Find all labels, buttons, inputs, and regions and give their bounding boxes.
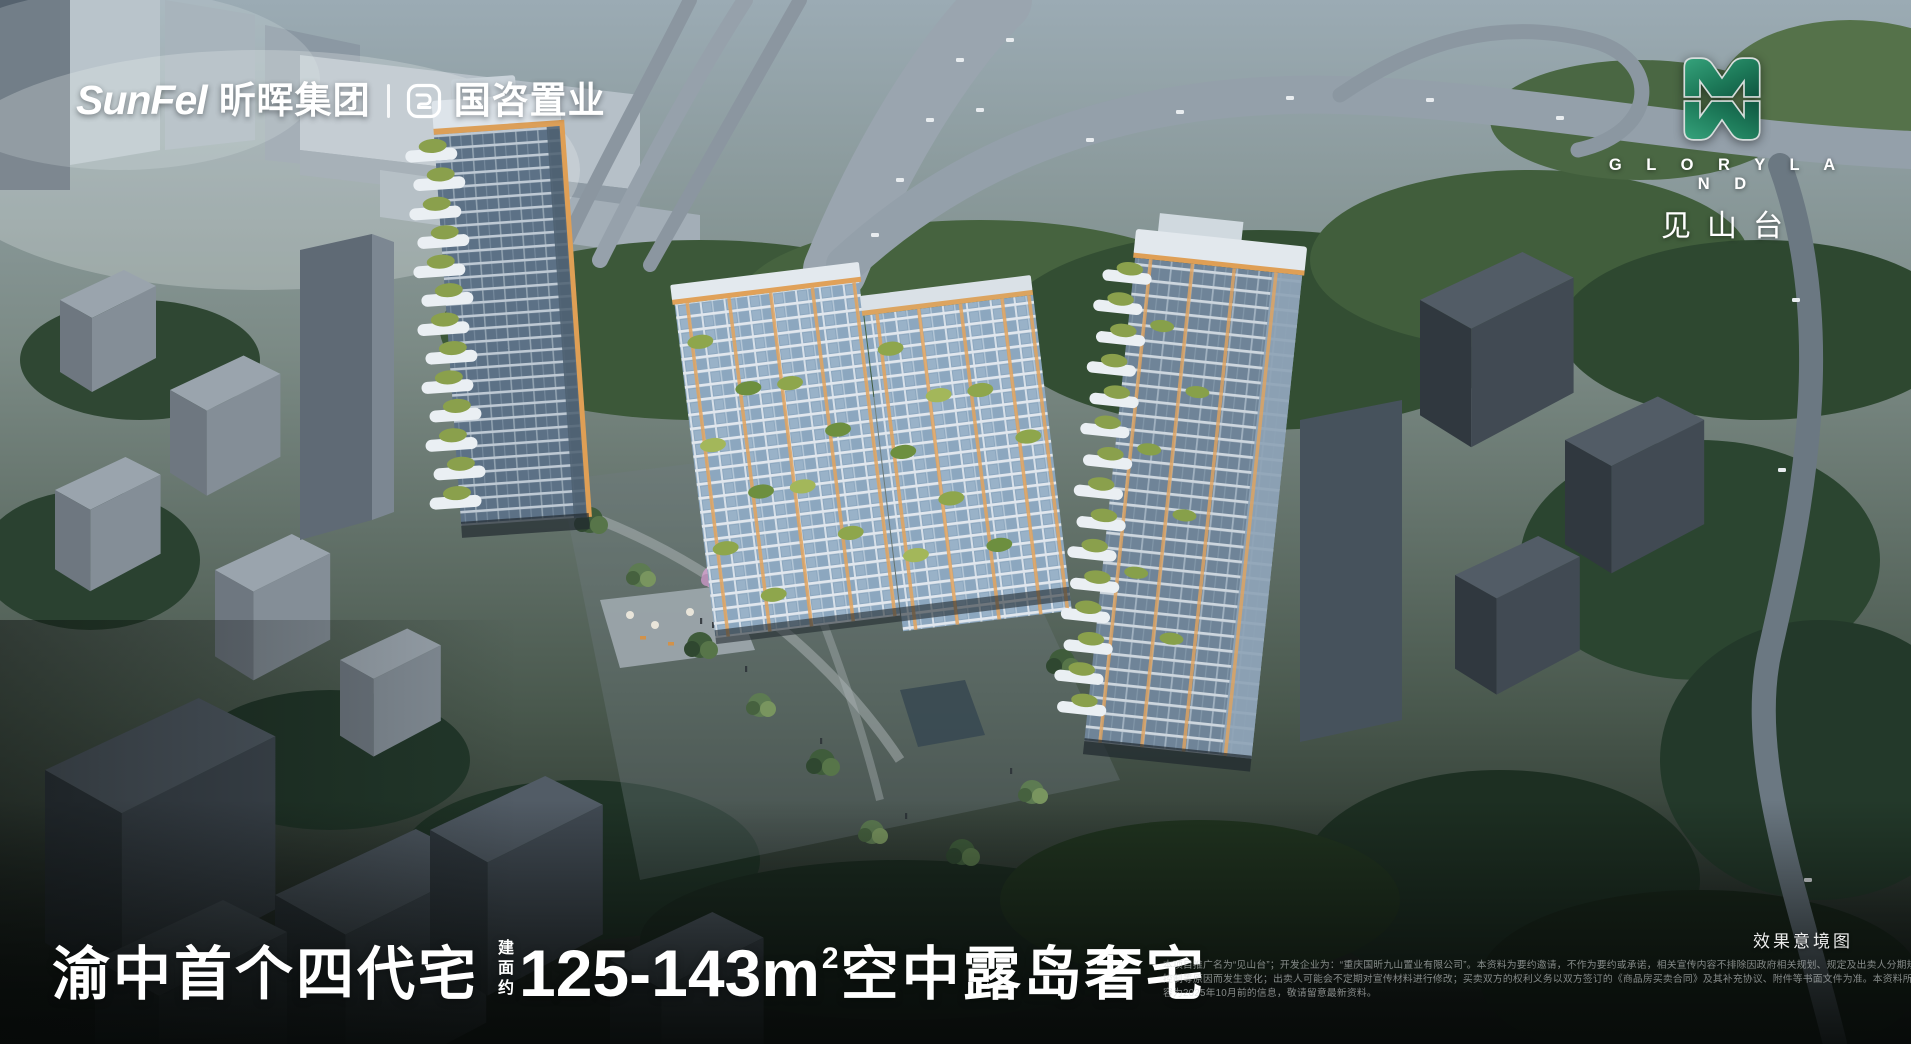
disclaimer-line-2: 控制等原因而发生变化；出卖人可能会不定期对宣传材料进行修改；买卖双方的权利义务以… — [1163, 973, 1863, 987]
guozi-logo-icon — [406, 83, 442, 119]
building-center — [670, 241, 1072, 654]
render-caption: 效果意境图 — [1753, 927, 1853, 952]
headline-area-label: 建面约 — [495, 939, 511, 999]
project-brand: G L O R Y L A N D 见山台 — [1594, 52, 1850, 245]
glory-land-monogram-icon — [1678, 52, 1766, 146]
brand-divider — [387, 84, 390, 118]
headline-area-value: 125-143m — [519, 943, 820, 1004]
ad-poster: SunFel 昕晖集团 国咨置业 G L O R Y L A N D 见山台 渝… — [0, 0, 1911, 1044]
headline-part2: 空中露岛奢宅 — [841, 946, 1207, 1004]
headline: 渝中首个四代宅 建面约 125-143m 2 空中露岛奢宅 — [52, 939, 1207, 1004]
xinhui-group-label: 昕晖集团 — [219, 82, 371, 119]
disclaimer-line-3: 容为2025年10月前的信息，敬请留意最新资料。 — [1163, 987, 1863, 1001]
glory-land-label: G L O R Y L A N D — [1594, 156, 1850, 194]
disclaimer-line-1: 本项目推广名为“见山台”；开发企业为：“重庆国昕九山置业有限公司”。本资料为要约… — [1163, 959, 1863, 973]
guozi-label: 国咨置业 — [454, 82, 606, 119]
legal-disclaimer: 本项目推广名为“见山台”；开发企业为：“重庆国昕九山置业有限公司”。本资料为要约… — [1163, 959, 1863, 1001]
headline-part1: 渝中首个四代宅 — [52, 946, 479, 1004]
sunfel-wordmark: SunFel — [76, 80, 207, 121]
developer-lockup: SunFel 昕晖集团 国咨置业 — [76, 80, 606, 121]
jianshantai-label: 见山台 — [1594, 201, 1850, 245]
headline-area-sup: 2 — [822, 944, 839, 974]
